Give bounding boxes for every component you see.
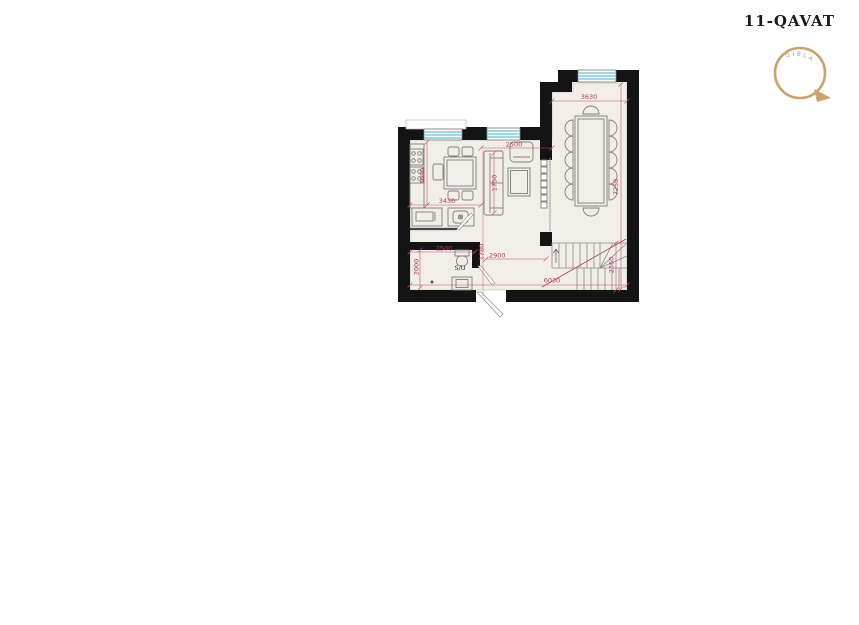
- wall-top-c: [520, 127, 552, 140]
- dim-living-width: 2500: [506, 141, 523, 149]
- balcony-slab: [406, 120, 466, 129]
- wall-bottom-right: [506, 290, 639, 302]
- chair-icon: [448, 147, 459, 156]
- wall-left: [398, 127, 410, 302]
- compass-pointer-icon: [814, 89, 831, 102]
- conference-table-inner: [578, 119, 604, 203]
- dim-hall-height: 1780: [478, 244, 486, 261]
- dim-su-width: 2500: [436, 245, 453, 253]
- kitchen-table: [444, 157, 476, 189]
- chair-icon: [462, 147, 473, 156]
- dim-su-height: 2000: [413, 259, 421, 276]
- chair-icon: [433, 164, 443, 180]
- wall-right: [627, 70, 639, 302]
- floor-plan-canvas: 3630 7250 2500 1750 3050 3430 2500 2000 …: [0, 0, 859, 625]
- conference-table-set: [565, 106, 617, 216]
- dim-sofa-length: 1750: [491, 175, 499, 192]
- dim-bottom-width: 6030: [544, 277, 561, 285]
- window-kitchen: [424, 129, 462, 140]
- washbasin-icon: [452, 277, 472, 290]
- entrance-door-leaf: [477, 292, 503, 317]
- dim-conference-height: 7250: [612, 179, 620, 196]
- room-label-su: S/U: [454, 264, 465, 272]
- dim-hall-width: 2900: [489, 252, 506, 260]
- chair-icon: [462, 191, 473, 200]
- wall-step: [540, 82, 572, 92]
- dim-stairs-height: 2360: [608, 257, 616, 274]
- qibla-compass: QIBLA: [775, 48, 831, 102]
- dim-conference-width: 3630: [581, 93, 598, 101]
- window-conference: [578, 70, 616, 82]
- dim-kitchen-height: 3050: [419, 168, 427, 185]
- coffee-table: [508, 168, 530, 196]
- floor-title: 11-QAVAT: [744, 12, 835, 30]
- floor-plan-page: 11-QAVAT: [0, 0, 859, 625]
- window-living: [487, 128, 520, 140]
- floor-drain-icon: [431, 281, 434, 284]
- dim-kitchen-width: 3430: [439, 197, 456, 205]
- wall-conference-left-block: [540, 232, 552, 246]
- wall-conference-top-left: [558, 70, 578, 82]
